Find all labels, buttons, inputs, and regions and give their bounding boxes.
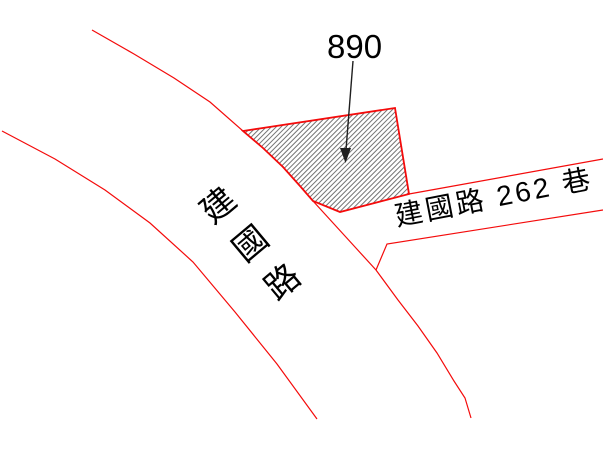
cadastral-map: 890 建國路 建國路 262 巷 <box>0 0 603 456</box>
parcel-number-label: 890 <box>327 30 382 63</box>
parcel-890-shape <box>243 108 409 212</box>
map-canvas <box>0 0 603 456</box>
